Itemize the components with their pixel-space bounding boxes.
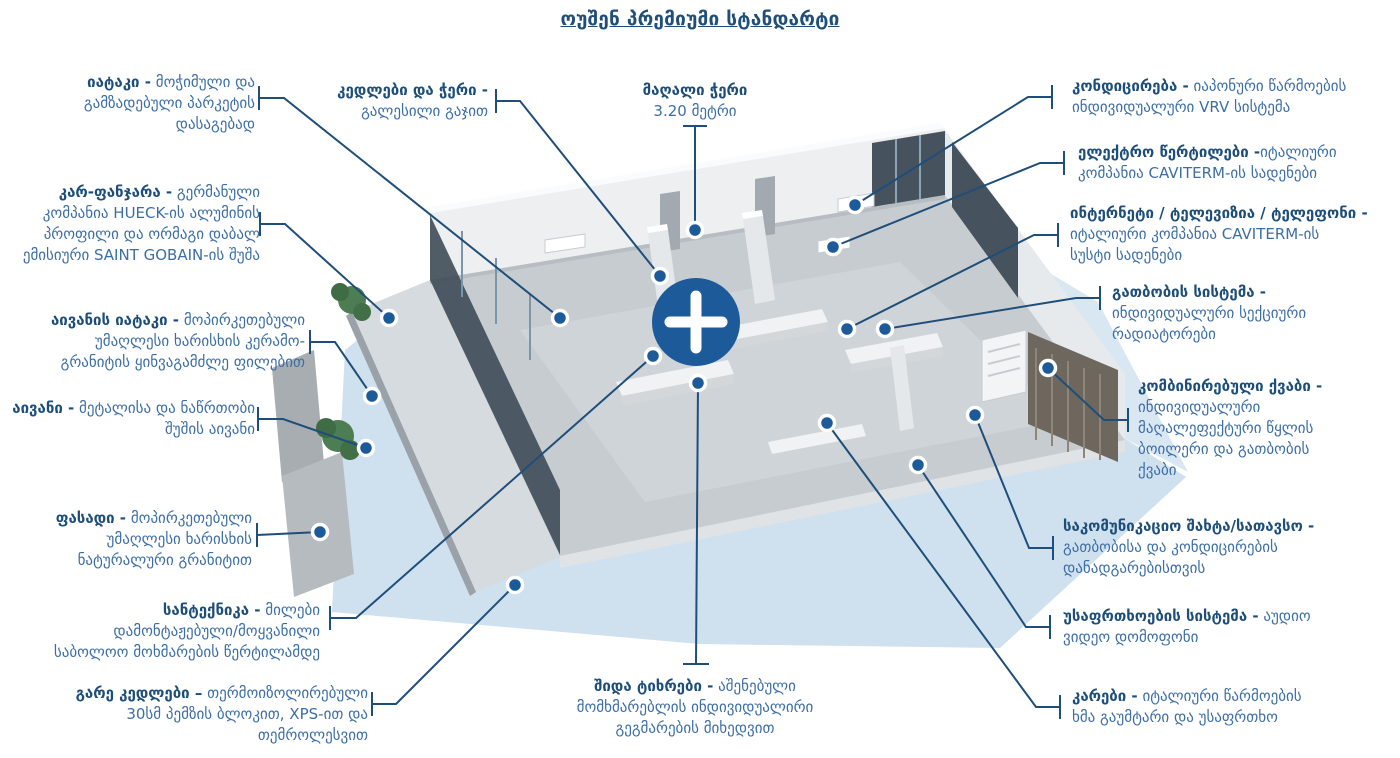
callout-walls-ceiling: კედლები და ჭერი - გალესილი გაჯით bbox=[330, 80, 488, 122]
callout-utility-shaft-text: გათბობისა და კონდიცირების დანადგარებისთვ… bbox=[1063, 538, 1278, 577]
callout-heating: გათბობის სისტემა - ინდივიდუალური სექციურ… bbox=[1112, 282, 1392, 345]
hotspot-dot-door-window bbox=[382, 311, 397, 326]
callout-security-title: უსაფრთხოების სისტემა - bbox=[1063, 607, 1259, 625]
callout-facade-title: ფასადი - bbox=[56, 509, 126, 527]
callout-balcony-text: მეტალისა და ნაწრთობი შუშის აივანი bbox=[74, 399, 255, 438]
callout-balcony-floor: აივანის იატაკი - მოპირკეთებული უმაღლესი … bbox=[0, 310, 305, 373]
callout-door-window-title: კარ-ფანჯარა - bbox=[59, 183, 172, 201]
callout-high-ceiling-title: მაღალი ჭერი bbox=[643, 81, 748, 99]
callout-high-ceiling: მაღალი ჭერი 3.20 მეტრი bbox=[610, 80, 780, 122]
hotspot-dot-internet bbox=[840, 322, 855, 337]
callout-walls-ceiling-text: გალესილი გაჯით bbox=[361, 102, 488, 120]
callout-plumbing-title: სანტექნიკა - bbox=[163, 601, 261, 619]
hotspot-dot-security bbox=[911, 458, 926, 473]
callout-combi-boiler-title: კომბინირებული ქვაბი - bbox=[1138, 377, 1322, 395]
callout-electrical-points-title: ელექტრო წერტილები - bbox=[1078, 143, 1260, 161]
callout-partitions: შიდა ტიხრები - აშენებული მომხმარებლის ინ… bbox=[560, 676, 830, 739]
callout-plumbing: სანტექნიკა - მილები დამონტაჟებული/მოყვან… bbox=[30, 600, 320, 663]
hotspot-dot-high-ceiling bbox=[688, 223, 703, 238]
callout-combi-boiler: კომბინირებული ქვაბი - ინდივიდუალური მაღა… bbox=[1138, 376, 1398, 481]
outdoor-ac-unit bbox=[982, 330, 1026, 402]
callout-electrical-points: ელექტრო წერტილები -იტალიური კომპანია CAV… bbox=[1078, 142, 1398, 184]
callout-security: უსაფრთხოების სისტემა - აუდიო ვიდეო დომოფ… bbox=[1063, 606, 1393, 648]
apartment-3d-render bbox=[272, 123, 1188, 648]
hotspot-dot-plumbing bbox=[646, 349, 661, 364]
line-door-window bbox=[260, 224, 389, 318]
infographic-canvas: ოუშენ პრემიუმი სტანდარტი bbox=[0, 0, 1400, 758]
callout-combi-boiler-text: ინდივიდუალური მაღალეფექტური წყლის ბოილერ… bbox=[1138, 398, 1313, 479]
callout-partitions-title: შიდა ტიხრები - bbox=[594, 677, 713, 695]
hotspot-dot-floor bbox=[553, 311, 568, 326]
callout-floor-title: იატაკი - bbox=[87, 73, 151, 91]
callout-high-ceiling-text: 3.20 მეტრი bbox=[653, 102, 736, 120]
callout-balcony-floor-title: აივანის იატაკი - bbox=[51, 311, 179, 329]
callout-walls-ceiling-title: კედლები და ჭერი - bbox=[337, 81, 488, 99]
callout-utility-shaft-title: საკომუნიკაციო შახტა/სათავსო - bbox=[1063, 517, 1314, 535]
callout-exterior-walls: გარე კედლები – თერმოიზოლირებული 30სმ პემ… bbox=[10, 683, 368, 746]
callout-heating-text: ინდივიდუალური სექციური რადიატორები bbox=[1112, 304, 1306, 343]
hotspot-dot-doors bbox=[820, 416, 835, 431]
hotspot-dot-electrical bbox=[826, 240, 841, 255]
callout-heating-title: გათბობის სისტემა - bbox=[1112, 283, 1266, 301]
callout-floor: იატაკი - მოჭიმული და გამზადებული პარკეტი… bbox=[15, 72, 255, 135]
back-glass bbox=[872, 131, 945, 207]
callout-door-window: კარ-ფანჯარა - გერმანული კომპანია HUECK-ი… bbox=[0, 182, 260, 266]
hotspot-dot-boiler bbox=[1041, 361, 1056, 376]
callout-conditioning-title: კონდიცირება - bbox=[1072, 77, 1189, 95]
hotspot-dot-balcony-floor bbox=[365, 389, 380, 404]
hotspot-dot-heating bbox=[878, 322, 893, 337]
callout-internet-tv-phone-title: ინტერნეტი / ტელევიზია / ტელეფონი - bbox=[1070, 204, 1368, 222]
callout-utility-shaft: საკომუნიკაციო შახტა/სათავსო - გათბობისა … bbox=[1063, 516, 1393, 579]
callout-balcony-title: აივანი - bbox=[12, 399, 74, 417]
hotspot-dot-conditioning bbox=[848, 198, 863, 213]
expand-plus-button[interactable] bbox=[652, 278, 740, 366]
callout-conditioning: კონდიცირება - იაპონური წარმოების ინდივიდ… bbox=[1072, 76, 1398, 118]
callout-facade: ფასადი - მოპირკეთებული უმაღლესი ხარისხის… bbox=[40, 508, 252, 571]
hotspot-dot-walls-ceiling bbox=[653, 269, 668, 284]
callout-internet-tv-phone: ინტერნეტი / ტელევიზია / ტელეფონი - იტალი… bbox=[1070, 203, 1400, 266]
callout-exterior-walls-title: გარე კედლები – bbox=[76, 684, 203, 702]
callout-doors-title: კარები - bbox=[1072, 687, 1138, 705]
hotspot-dot-partitions bbox=[691, 376, 706, 391]
hotspot-dot-facade bbox=[313, 525, 328, 540]
callout-internet-tv-phone-text: იტალიური კომპანია CAVITERM-ის სუსტი სადე… bbox=[1070, 225, 1319, 264]
callout-doors: კარები - იტალიური წარმოების ხმა გაუმტარი… bbox=[1072, 686, 1392, 728]
hotspot-dot-shaft bbox=[968, 408, 983, 423]
callout-balcony: აივანი - მეტალისა და ნაწრთობი შუშის აივა… bbox=[10, 398, 255, 440]
hotspot-dot-balcony bbox=[359, 441, 374, 456]
hotspot-dot-exterior-walls bbox=[508, 578, 523, 593]
